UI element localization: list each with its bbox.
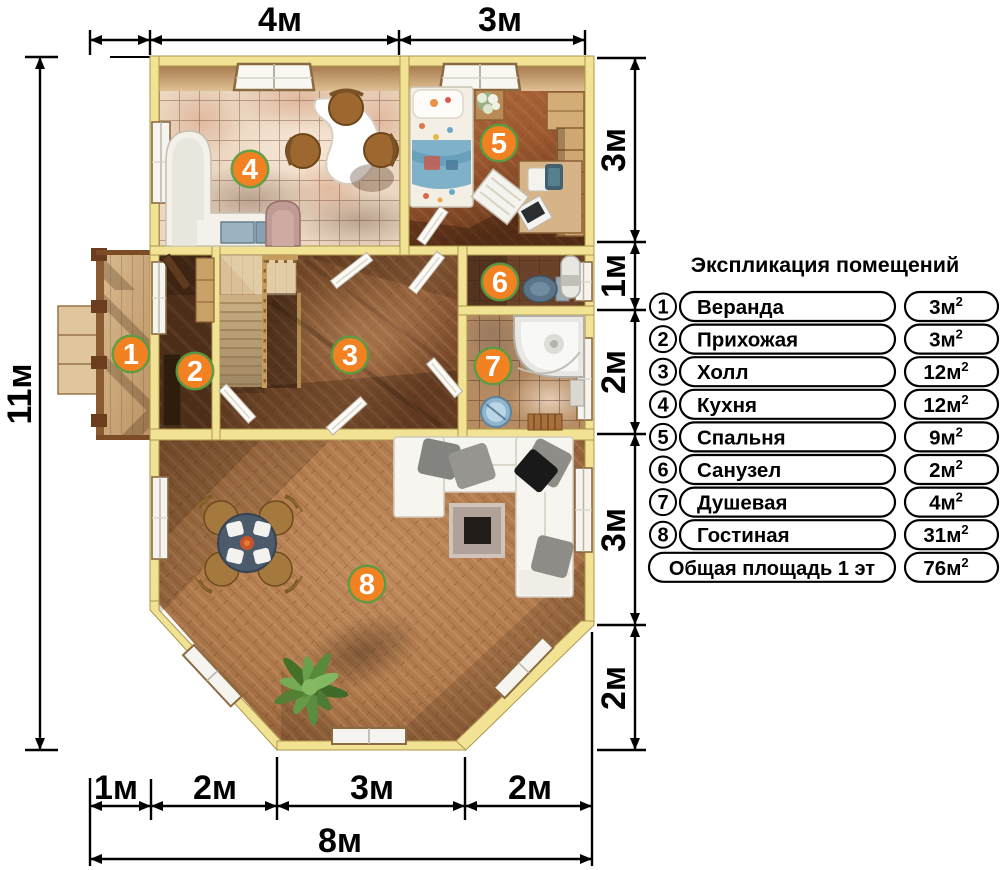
svg-text:2м: 2м [193,769,237,807]
svg-text:7: 7 [657,492,668,514]
svg-text:1м: 1м [595,254,633,298]
svg-text:1: 1 [123,339,139,371]
svg-text:8: 8 [359,569,375,601]
svg-text:Кухня: Кухня [697,394,757,417]
svg-text:Холл: Холл [697,361,748,384]
svg-text:Гостиная: Гостиная [697,524,790,547]
svg-text:Санузел: Санузел [697,459,781,482]
svg-text:Душевая: Душевая [697,492,787,515]
svg-text:3: 3 [657,362,668,384]
svg-text:2: 2 [657,329,668,351]
svg-text:Веранда: Веранда [697,296,785,319]
svg-text:Прихожая: Прихожая [697,329,798,352]
svg-text:2м: 2м [595,666,633,710]
svg-text:1м: 1м [94,769,138,807]
svg-text:3: 3 [342,340,358,372]
svg-text:6: 6 [492,267,508,299]
svg-text:8м: 8м [318,822,362,860]
svg-text:2м: 2м [595,350,633,394]
svg-text:7: 7 [485,351,501,383]
svg-text:5: 5 [491,128,507,160]
svg-text:3м: 3м [595,508,633,552]
svg-text:5: 5 [657,427,668,449]
svg-text:11м: 11м [1,363,39,424]
svg-text:Спальня: Спальня [697,426,786,449]
svg-text:3м: 3м [478,1,522,39]
svg-text:8: 8 [657,525,668,547]
svg-text:4м: 4м [258,1,302,39]
svg-text:6: 6 [657,460,668,482]
svg-text:Общая площадь 1 эт: Общая площадь 1 эт [669,558,875,580]
svg-text:2: 2 [187,356,203,388]
svg-text:1: 1 [657,297,668,319]
svg-text:Экспликация помещений: Экспликация помещений [691,253,959,277]
svg-text:4: 4 [657,394,669,416]
svg-text:4: 4 [242,154,258,186]
svg-text:2м: 2м [508,769,552,807]
svg-text:3м: 3м [350,769,394,807]
svg-text:3м: 3м [595,128,633,172]
